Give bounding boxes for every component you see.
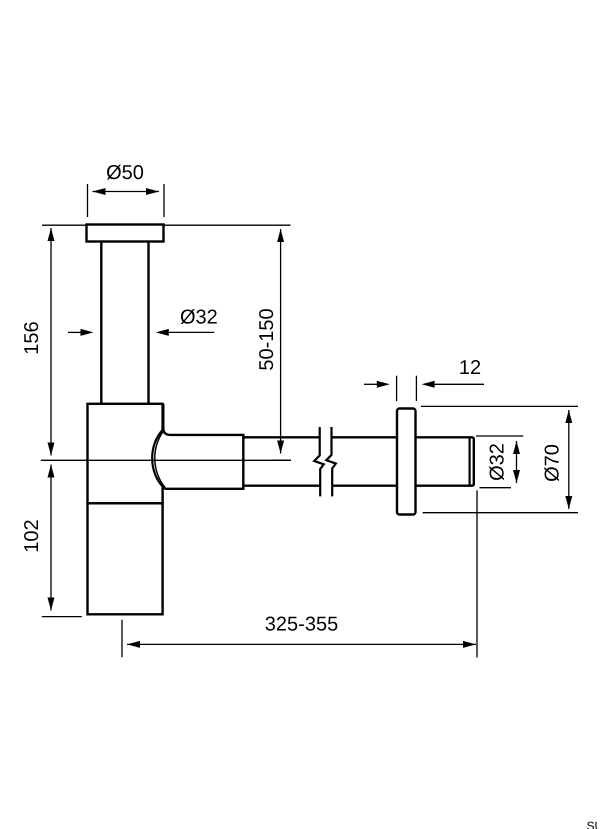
svg-text:12: 12	[459, 357, 481, 379]
svg-text:156: 156	[21, 321, 43, 354]
svg-text:50-150: 50-150	[256, 308, 278, 370]
svg-text:Ø32: Ø32	[180, 307, 218, 329]
svg-text:Ø32: Ø32	[487, 443, 509, 481]
svg-text:325-355: 325-355	[265, 614, 338, 636]
svg-text:Ø70: Ø70	[542, 444, 564, 482]
svg-text:102: 102	[21, 519, 43, 552]
svg-text:SU: SU	[587, 819, 600, 829]
svg-text:Ø50: Ø50	[106, 162, 144, 184]
